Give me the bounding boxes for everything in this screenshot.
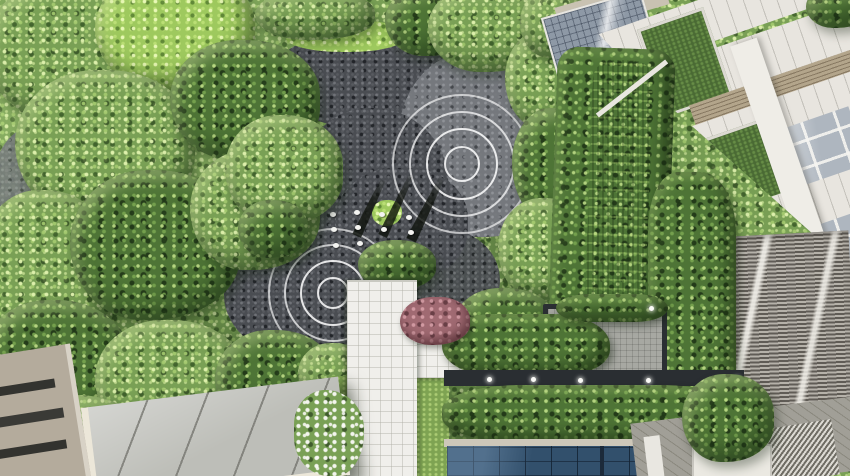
garden-rendering: [0, 0, 850, 476]
terrace-light: [646, 378, 651, 383]
stepping-stone: [333, 243, 339, 248]
window-band: [0, 439, 67, 459]
stepping-stone: [406, 215, 412, 220]
stepping-stone: [357, 241, 363, 246]
terrace-light: [531, 377, 536, 382]
japanese-maple: [400, 297, 470, 345]
flower-bed: [294, 390, 364, 476]
terrace-light: [487, 377, 492, 382]
terrace-light: [578, 378, 583, 383]
tree-canopy: [238, 200, 308, 258]
stepping-stone: [331, 227, 337, 232]
stepping-stone: [379, 212, 385, 217]
stepping-stone: [330, 212, 336, 217]
stepping-stone: [408, 230, 414, 235]
stepping-stone: [354, 210, 360, 215]
terrace-light: [649, 306, 654, 311]
window-band: [0, 378, 56, 398]
stepping-stone: [355, 225, 361, 230]
planter-shrub: [682, 374, 774, 462]
window-band: [0, 407, 64, 428]
pool-divider: [600, 446, 604, 476]
stepping-stone: [381, 227, 387, 232]
lap-pool: [447, 446, 659, 476]
